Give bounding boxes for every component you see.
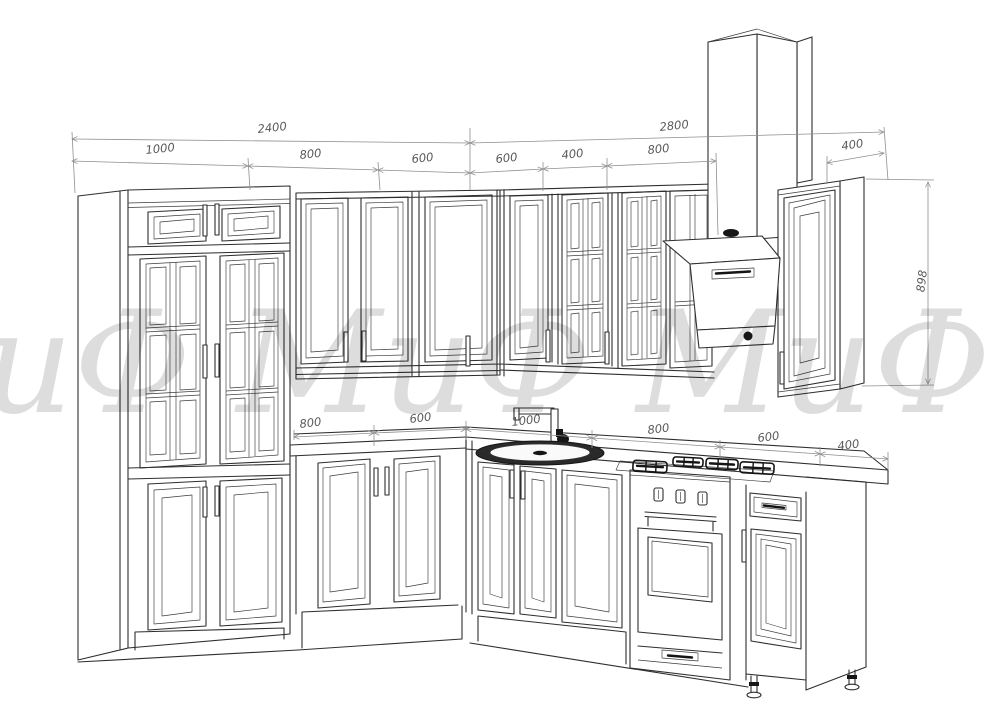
hood-mount-cap <box>723 229 739 237</box>
dim-label-top-800r: 800 <box>647 141 670 157</box>
watermark-text: иФ МиФ МиФ Ми <box>0 281 1000 446</box>
dim-label-right-400: 400 <box>840 136 864 153</box>
dim-label-top-600l: 600 <box>411 150 434 166</box>
dim-label-total-right: 2800 <box>659 117 690 134</box>
oven <box>630 470 746 680</box>
sink-drain <box>533 451 547 455</box>
dim-label-top-1000: 1000 <box>145 140 176 157</box>
end-panel <box>806 477 866 690</box>
handle <box>203 487 207 517</box>
handle <box>521 471 525 499</box>
handle <box>215 486 219 516</box>
dim-label-top-600r: 600 <box>495 150 518 166</box>
handle <box>510 470 514 498</box>
dim-label-top-400r: 400 <box>561 146 584 162</box>
drawing-canvas: 2400 2800 1000 800 600 600 400 800 400 8… <box>0 0 1000 707</box>
handle <box>215 204 219 235</box>
base-cabinets-left <box>296 440 472 648</box>
handle <box>203 205 207 236</box>
handle <box>374 468 378 496</box>
adjustable-legs <box>747 670 859 698</box>
dim-label-total-left: 2400 <box>257 119 288 136</box>
handle <box>385 467 389 495</box>
kitchen-technical-drawing: 2400 2800 1000 800 600 600 400 800 400 8… <box>0 0 1000 707</box>
drawer-handle <box>764 506 784 508</box>
drawer-cabinet <box>742 492 806 690</box>
handle <box>742 530 746 562</box>
dim-label-top-800l: 800 <box>299 146 322 162</box>
base-cabinets-right <box>478 462 626 664</box>
